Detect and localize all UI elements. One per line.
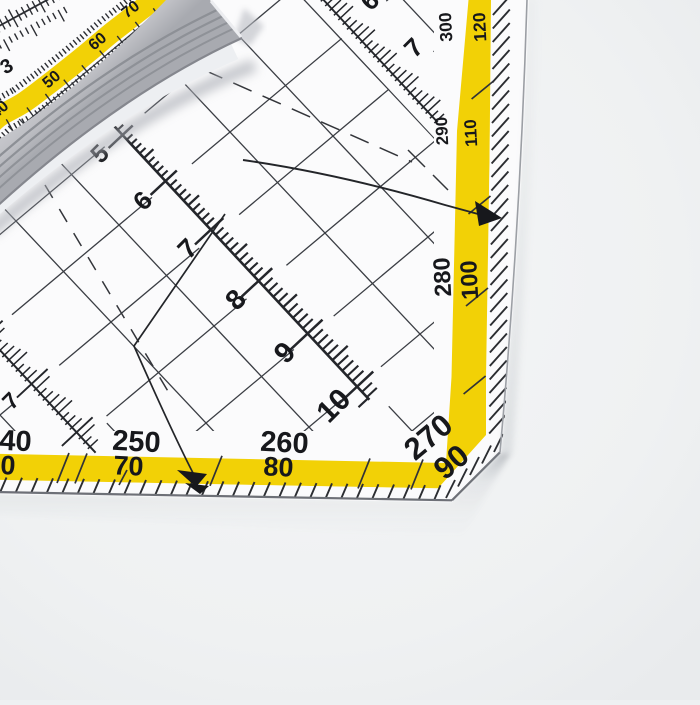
svg-text:60: 60	[0, 449, 16, 481]
svg-text:70: 70	[113, 450, 145, 482]
svg-text:280: 280	[428, 257, 456, 298]
svg-text:290: 290	[432, 116, 452, 145]
svg-text:80: 80	[263, 451, 295, 483]
svg-text:120: 120	[469, 12, 491, 42]
svg-text:100: 100	[455, 260, 483, 301]
svg-text:110: 110	[461, 119, 481, 147]
svg-text:300: 300	[435, 12, 457, 42]
